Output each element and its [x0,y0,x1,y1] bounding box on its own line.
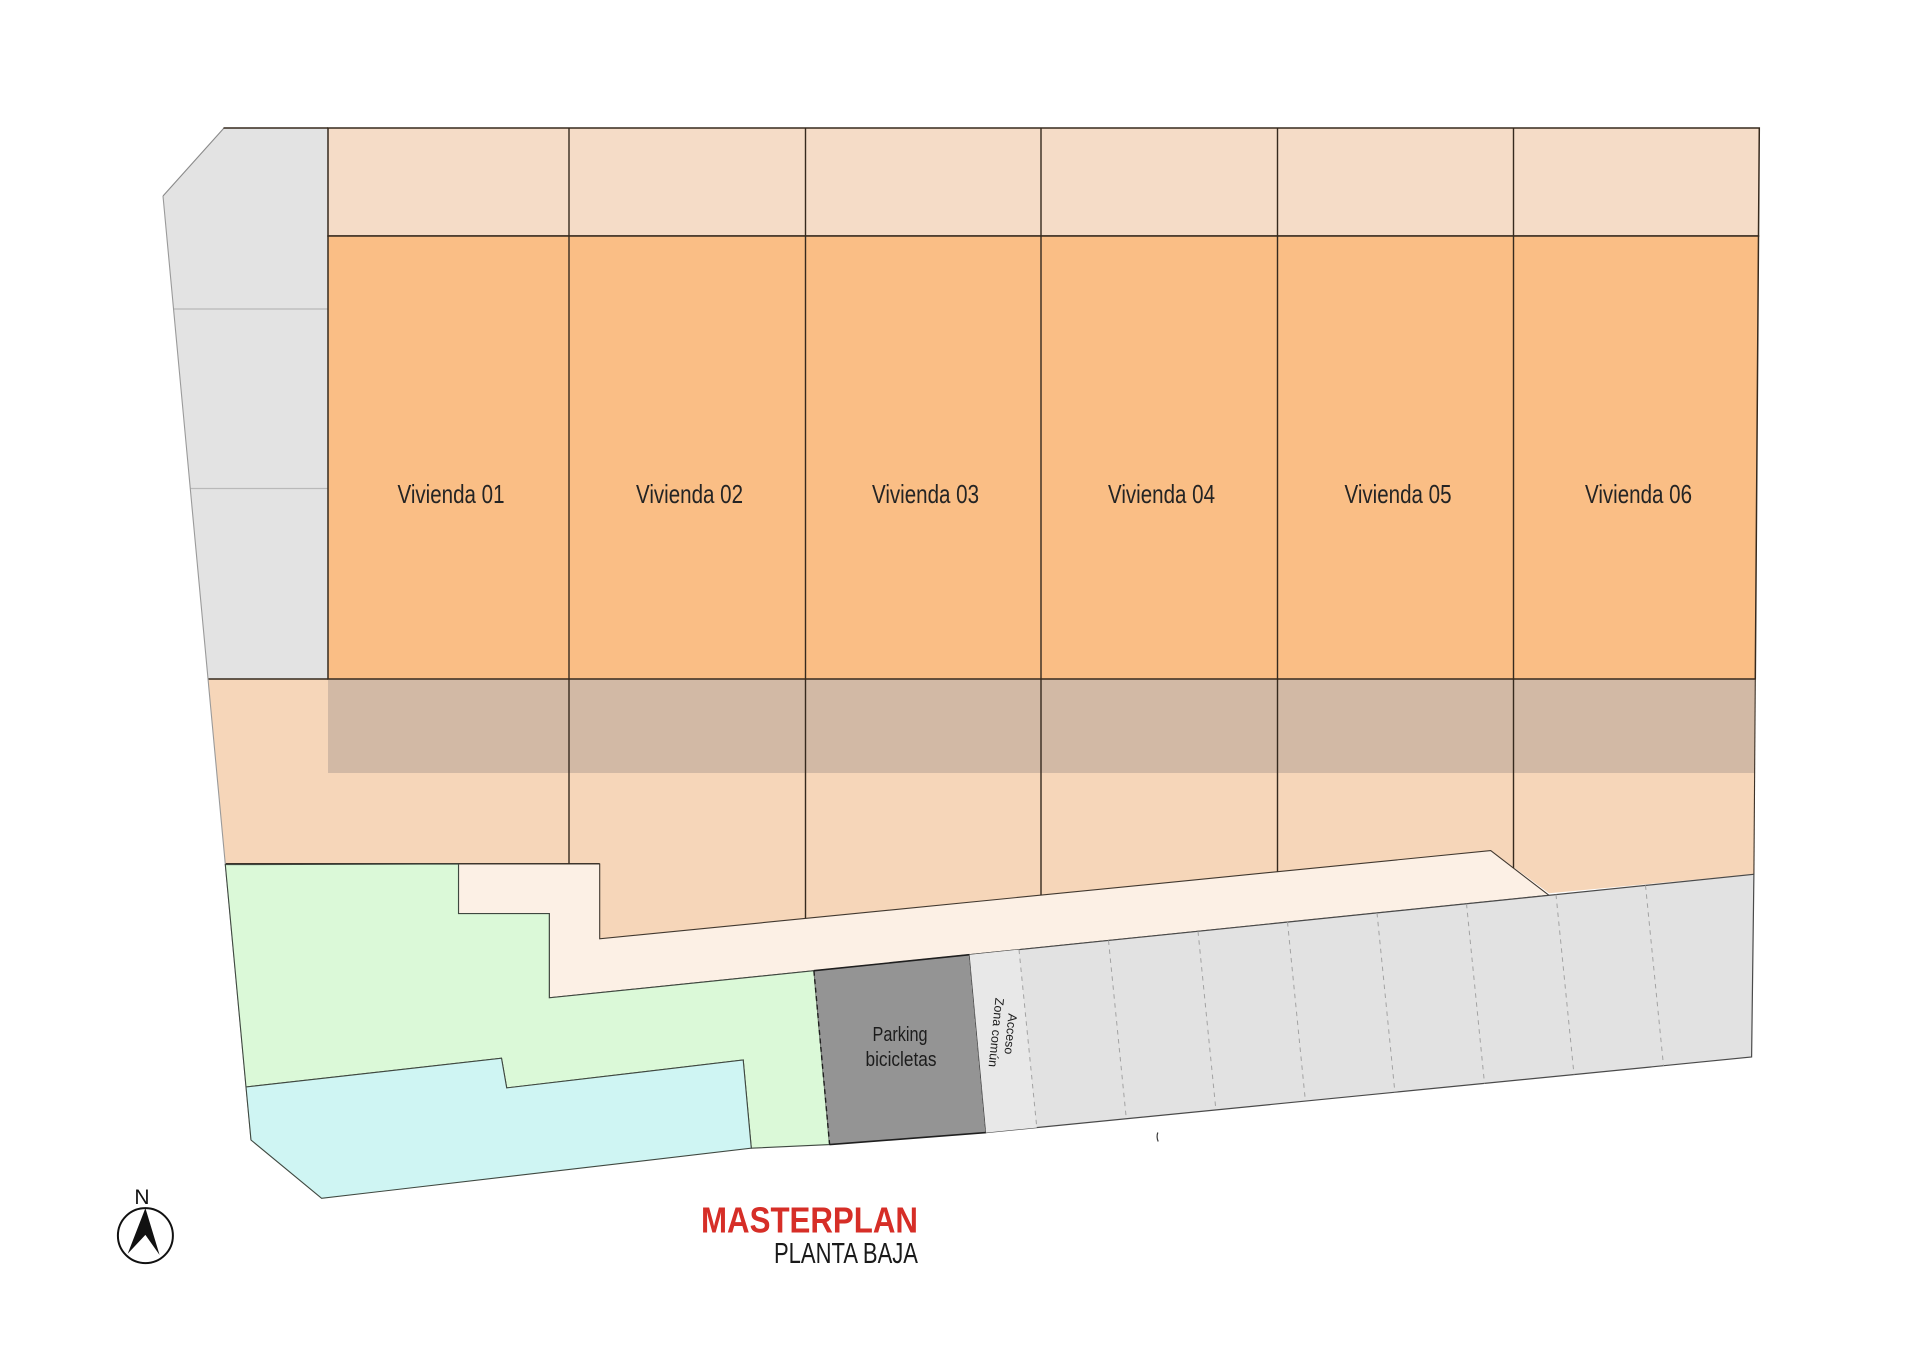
svg-text:Vivienda 03: Vivienda 03 [872,479,979,509]
svg-text:Vivienda 02: Vivienda 02 [636,479,743,509]
svg-text:bicicletas: bicicletas [866,1049,937,1071]
svg-text:Vivienda 01: Vivienda 01 [398,479,505,509]
svg-text:Vivienda 06: Vivienda 06 [1585,479,1692,509]
svg-text:Vivienda 05: Vivienda 05 [1345,479,1452,509]
svg-text:N: N [134,1186,149,1209]
svg-text:Vivienda 04: Vivienda 04 [1108,479,1215,509]
svg-text:MASTERPLAN: MASTERPLAN [701,1200,918,1241]
svg-text:Parking: Parking [873,1024,928,1046]
svg-text:PLANTA BAJA: PLANTA BAJA [774,1238,918,1270]
